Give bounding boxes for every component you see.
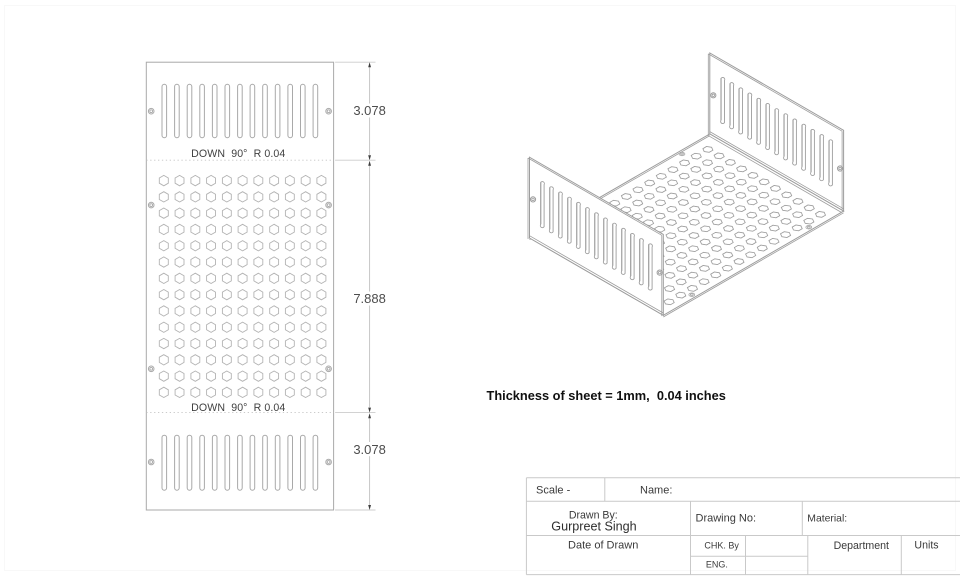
svg-text:Drawing No:: Drawing No: [696, 513, 757, 525]
svg-text:Material:: Material: [807, 514, 847, 525]
svg-text:3.078: 3.078 [353, 103, 386, 118]
svg-text:Gurpreet Singh: Gurpreet Singh [551, 520, 636, 534]
svg-text:Department: Department [834, 540, 889, 552]
svg-text:Scale -: Scale - [536, 485, 571, 497]
svg-text:CHK. By: CHK. By [704, 541, 739, 551]
svg-text:Units: Units [914, 540, 938, 552]
svg-text:3.078: 3.078 [353, 442, 386, 457]
svg-text:ENG.: ENG. [706, 559, 728, 569]
svg-text:DOWN 90° R 0.04: DOWN 90° R 0.04 [191, 148, 285, 160]
svg-text:Date of Drawn: Date of Drawn [568, 539, 638, 551]
svg-text:Thickness of sheet = 1mm, 0.0: Thickness of sheet = 1mm, 0.04 inches [487, 388, 726, 403]
svg-text:7.888: 7.888 [353, 291, 386, 306]
svg-text:Name:: Name: [640, 485, 672, 497]
